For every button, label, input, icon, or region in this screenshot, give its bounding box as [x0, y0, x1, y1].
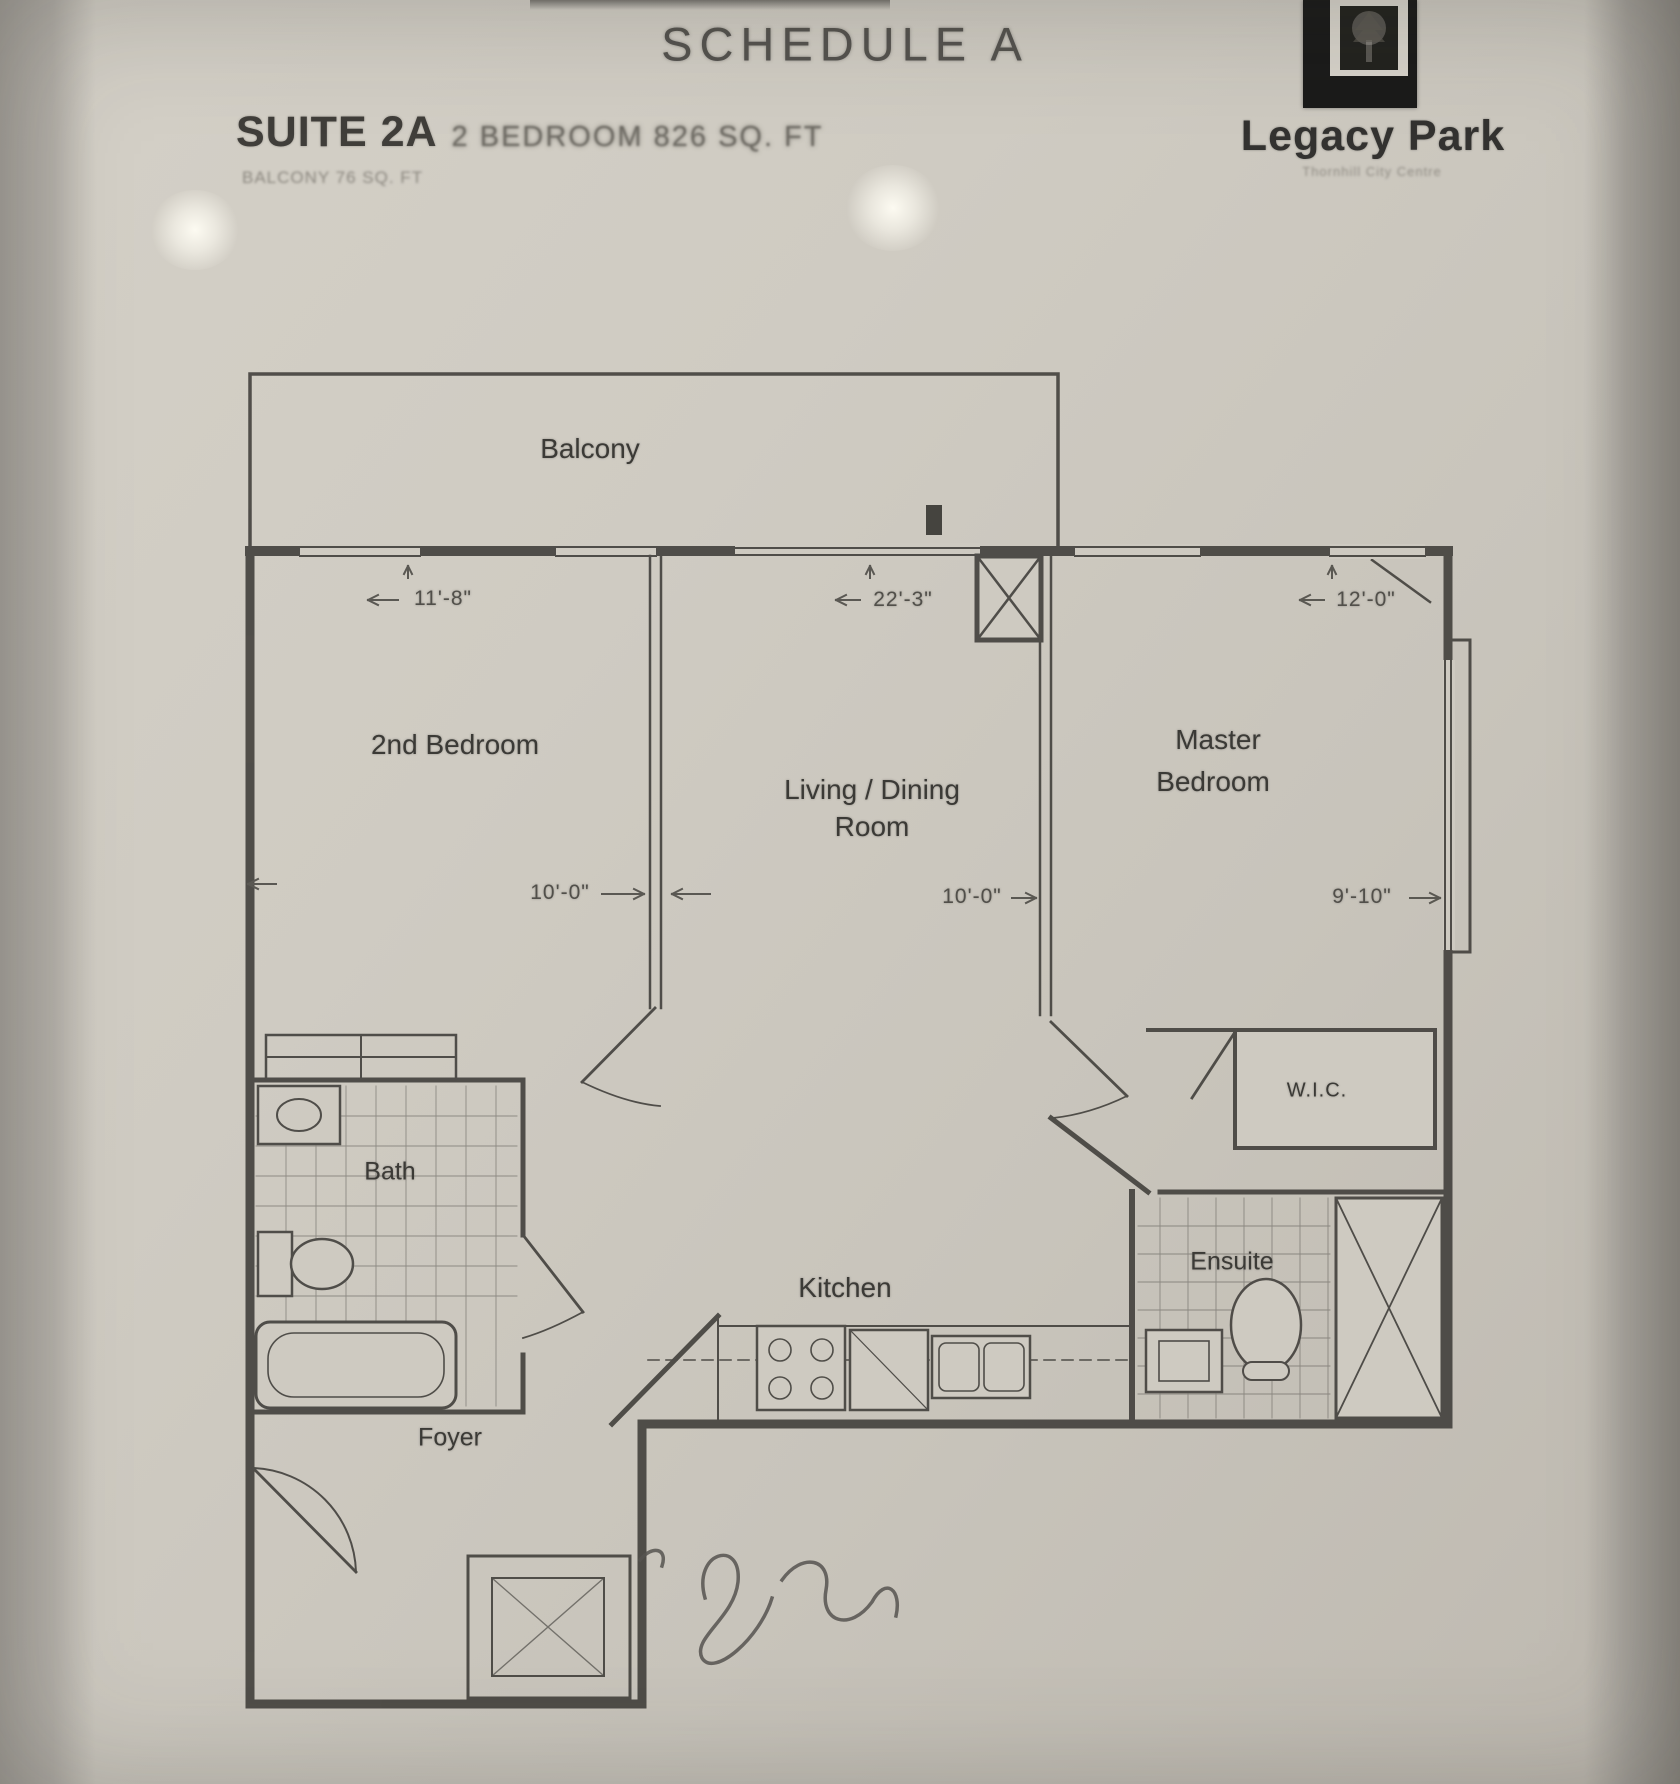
floorplan-photo: SCHEDULE A SUITE 2A2 BEDROOM 826 SQ. FT …: [0, 0, 1680, 1784]
door-arcs: [253, 1008, 1235, 1572]
room-label-ensuite: Ensuite: [1190, 1248, 1273, 1277]
room-label-wic: W.I.C.: [1287, 1080, 1347, 1103]
column-x-icon: [977, 556, 1041, 640]
balcony-walls: [250, 374, 1058, 546]
room-label-foyer: Foyer: [418, 1424, 482, 1453]
floorplan-linework: [0, 0, 1680, 1784]
room-label-bath: Bath: [364, 1158, 415, 1187]
foyer-closet: [468, 1556, 630, 1698]
signature-squiggle: [640, 1550, 897, 1663]
room-label-master-2: Bedroom: [1156, 766, 1270, 798]
room-label-living-dining-2: Room: [835, 811, 910, 843]
dim-second-bedroom-width: 11'-8": [414, 587, 472, 611]
room-label-living-dining-1: Living / Dining: [784, 774, 960, 806]
room-label-balcony: Balcony: [540, 433, 640, 465]
room-label-second-bedroom: 2nd Bedroom: [371, 729, 539, 761]
dim-second-bedroom-depth: 10'-0": [530, 881, 590, 905]
dim-living-depth: 10'-0": [942, 885, 1002, 909]
bath-fixtures: [256, 1086, 456, 1408]
dim-master-depth: 9'-10": [1332, 885, 1392, 909]
ensuite-fixtures: [1146, 1198, 1442, 1418]
room-label-kitchen: Kitchen: [798, 1272, 891, 1304]
dim-living-width: 22'-3": [873, 588, 933, 612]
closet-second-bedroom: [266, 1035, 456, 1079]
dim-master-width: 12'-0": [1336, 588, 1396, 612]
room-label-master-1: Master: [1175, 724, 1261, 756]
kitchen-fixtures: [648, 1316, 1130, 1424]
